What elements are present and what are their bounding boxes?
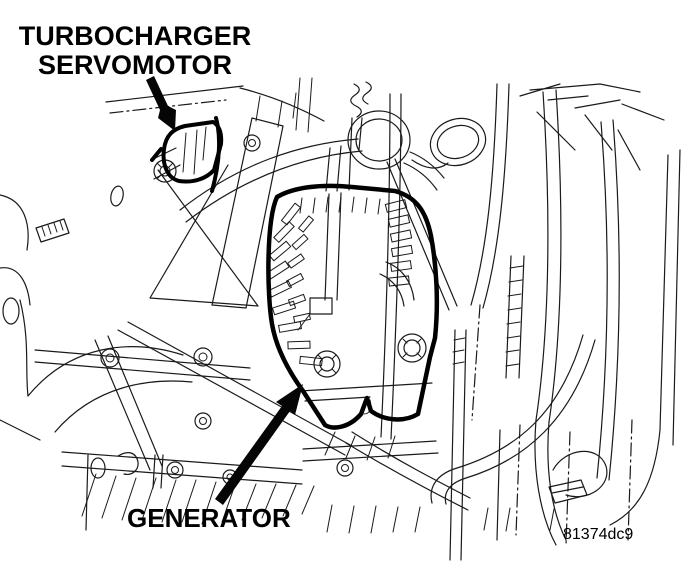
- background-linework-right: [450, 84, 680, 560]
- turbocharger-label-line1: TURBOCHARGER: [18, 22, 252, 51]
- engine-bay-drawing: [0, 0, 688, 572]
- background-linework-top: [180, 78, 492, 222]
- ribbed-hose: [506, 256, 524, 378]
- generator-body-details: [298, 193, 432, 414]
- figure: TURBOCHARGER SERVOMOTOR GENERATOR 81374d…: [0, 0, 688, 572]
- generator-bolts: [314, 334, 426, 377]
- turbocharger-label-line2: SERVOMOTOR: [18, 51, 252, 80]
- turbocharger-servomotor-label: TURBOCHARGER SERVOMOTOR: [18, 22, 252, 80]
- background-linework-left: [0, 86, 352, 530]
- servomotor-details: [151, 127, 206, 182]
- crossing-pipes: [381, 94, 457, 439]
- figure-code: 81374dc9: [563, 526, 633, 544]
- stud-bolt: [36, 219, 69, 242]
- servomotor-arrow: [146, 76, 176, 131]
- generator-arrow: [215, 384, 303, 505]
- servomotor-highlight-edge: [212, 118, 219, 191]
- servomotor-highlight-tab: [152, 149, 161, 160]
- generator-label: GENERATOR: [127, 505, 291, 531]
- servomotor-highlight-outline: [164, 122, 222, 182]
- turbocharger-servomotor: [151, 118, 221, 191]
- callout-arrows: [146, 76, 303, 505]
